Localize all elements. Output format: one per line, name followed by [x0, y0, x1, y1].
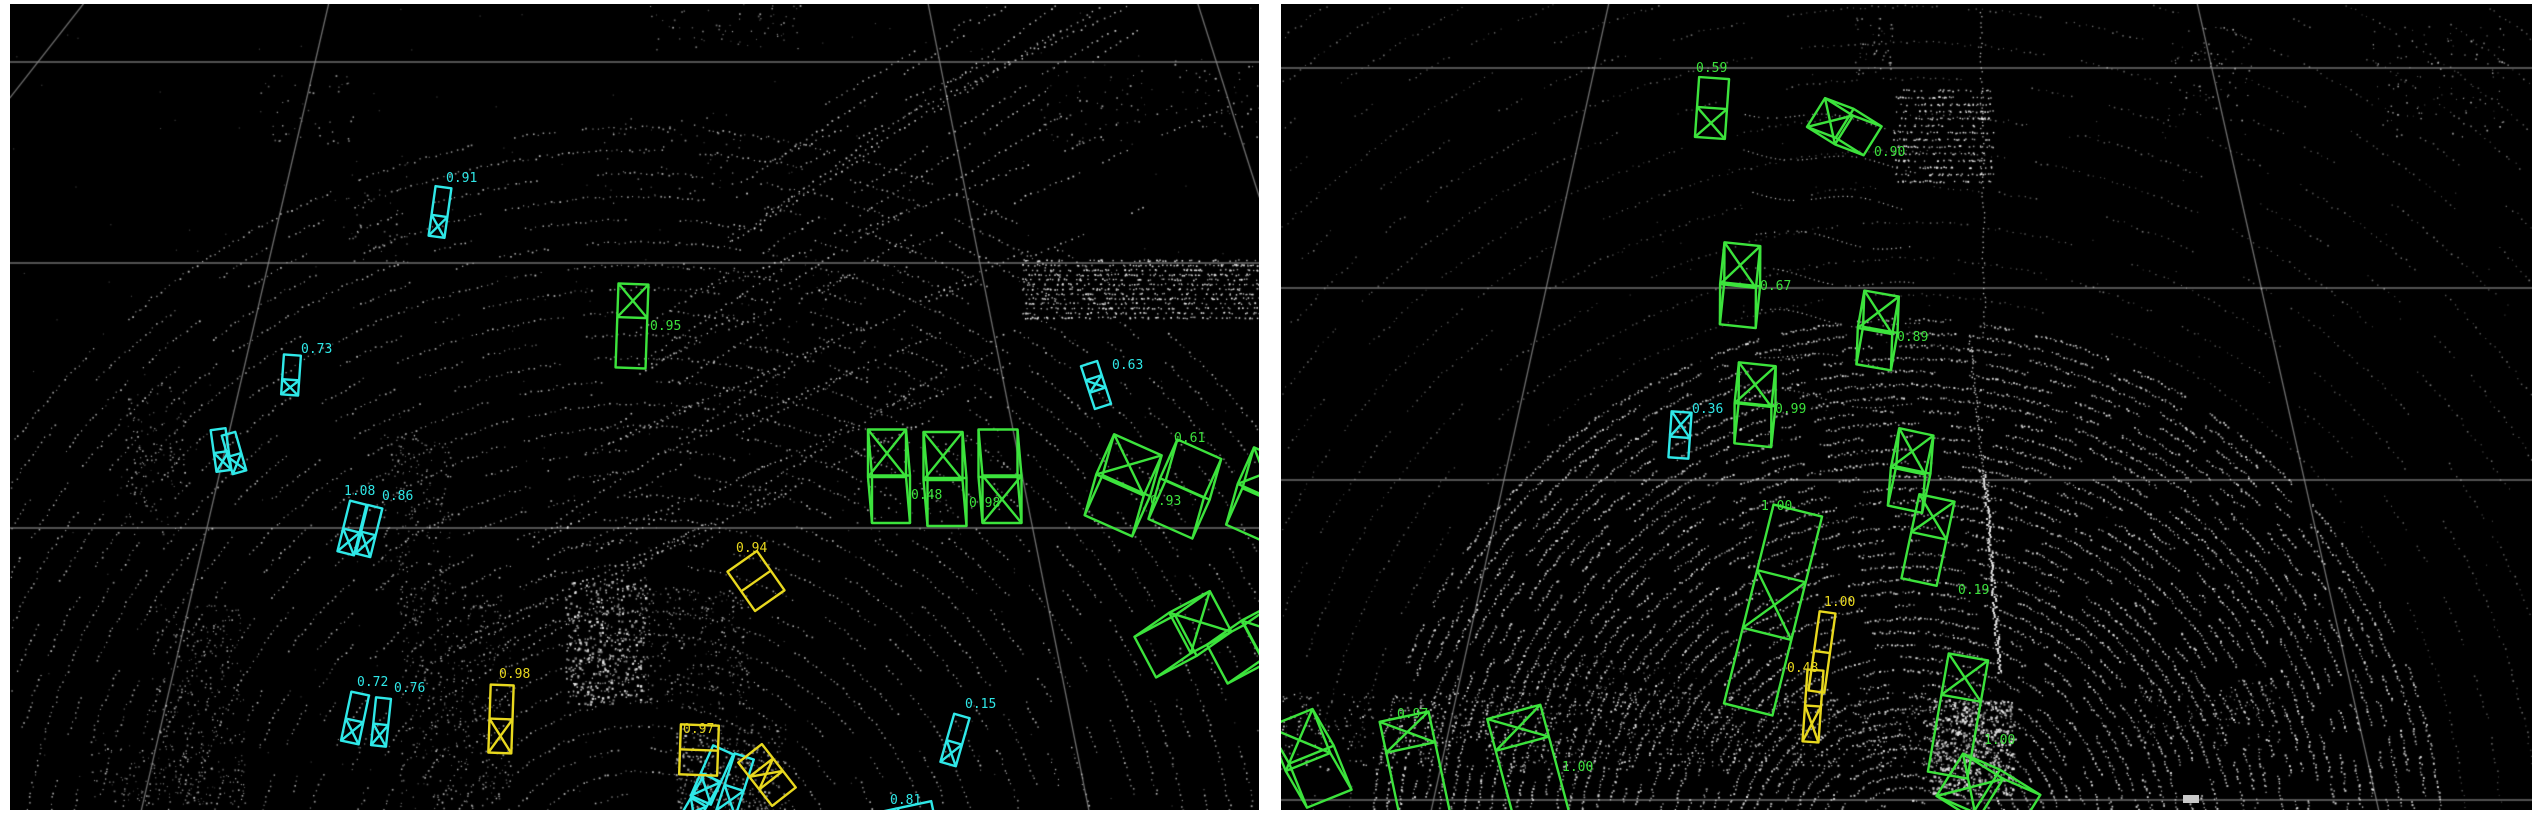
- detection-box-yellow: [727, 551, 784, 611]
- detections-overlay-left: 0.910.731.080.860.720.760.150.810.630.98…: [10, 4, 1259, 810]
- detection-box-green: [1852, 291, 1904, 371]
- lidar-detection-viewer: 0.910.731.080.860.720.760.150.810.630.98…: [0, 0, 2542, 820]
- detection-box-cyan: [1668, 411, 1691, 458]
- detection-score-label: 0.15: [965, 697, 996, 712]
- detection-score-label: 0.94: [736, 541, 767, 556]
- detection-score-label: 0.59: [1696, 61, 1727, 76]
- detection-box-cyan: [281, 354, 301, 395]
- detection-score-label: 0.76: [394, 681, 425, 696]
- detection-box-cyan: [1081, 361, 1111, 409]
- detection-box-yellow: [738, 744, 796, 806]
- detection-box-green: [1221, 447, 1259, 541]
- detection-score-label: 0.73: [301, 342, 332, 357]
- detection-box-green: [1807, 93, 1882, 160]
- detection-box-green: [1380, 711, 1451, 810]
- detection-box-cyan: [341, 692, 369, 745]
- detection-score-label: 1.00: [1824, 595, 1855, 610]
- detection-box-green: [1695, 77, 1729, 139]
- detection-box-green: [1281, 707, 1352, 810]
- detection-box-cyan: [940, 714, 969, 766]
- detection-box-green: [1716, 242, 1764, 328]
- detection-box-green: [1936, 749, 2040, 810]
- detection-box-cyan: [371, 697, 391, 746]
- detection-box-cyan: [429, 186, 452, 238]
- detection-box-green: [1143, 439, 1227, 538]
- detection-score-label: 0.95: [650, 319, 681, 334]
- detection-box-green: [1901, 494, 1954, 586]
- detection-score-label: 1.00: [1562, 760, 1593, 775]
- detection-score-label: 0.63: [1112, 358, 1143, 373]
- ego-vehicle-marker: [2183, 795, 2199, 803]
- detection-score-label: 0.36: [1692, 402, 1723, 417]
- detection-score-label: 0.97: [683, 722, 714, 737]
- detection-score-label: 0.67: [1760, 279, 1791, 294]
- detection-box-yellow: [1803, 670, 1824, 743]
- detection-score-label: 0.91: [446, 171, 477, 186]
- detection-box-yellow: [488, 685, 513, 754]
- detection-score-label: 0.48: [1787, 661, 1818, 676]
- detection-score-label: 1.00: [1761, 499, 1792, 514]
- detection-box-green: [1730, 362, 1779, 447]
- detection-score-label: 0.19: [1958, 583, 1989, 598]
- detection-score-label: 0.89: [1897, 330, 1928, 345]
- detection-score-label: 1.00: [1984, 733, 2015, 748]
- detection-box-green: [868, 430, 910, 524]
- detections-overlay-right: 0.590.900.670.890.990.361.001.000.480.19…: [1281, 4, 2532, 810]
- detection-score-label: 0.90: [1874, 145, 1905, 160]
- detection-box-cyan: [222, 432, 246, 474]
- detection-score-label: 0.72: [357, 675, 388, 690]
- detection-score-label: 0.61: [1174, 431, 1205, 446]
- detection-score-label: 0.97: [1397, 707, 1428, 722]
- detection-box-green: [1487, 705, 1569, 810]
- lidar-bev-view-left[interactable]: 0.910.731.080.860.720.760.150.810.630.98…: [10, 4, 1259, 810]
- detection-score-label: 0.99: [1775, 402, 1806, 417]
- detection-box-green: [616, 284, 649, 369]
- detection-box-green: [924, 432, 967, 526]
- detection-box-green: [1883, 428, 1938, 513]
- detection-score-label: 1.08: [344, 484, 375, 499]
- lidar-bev-view-right[interactable]: 0.590.900.670.890.990.361.001.000.480.19…: [1281, 4, 2532, 810]
- detection-score-label: 0.81: [890, 793, 921, 808]
- detection-score-label: 0.98: [499, 667, 530, 682]
- detection-box-green: [1205, 601, 1259, 684]
- detection-score-label: 0.86: [382, 489, 413, 504]
